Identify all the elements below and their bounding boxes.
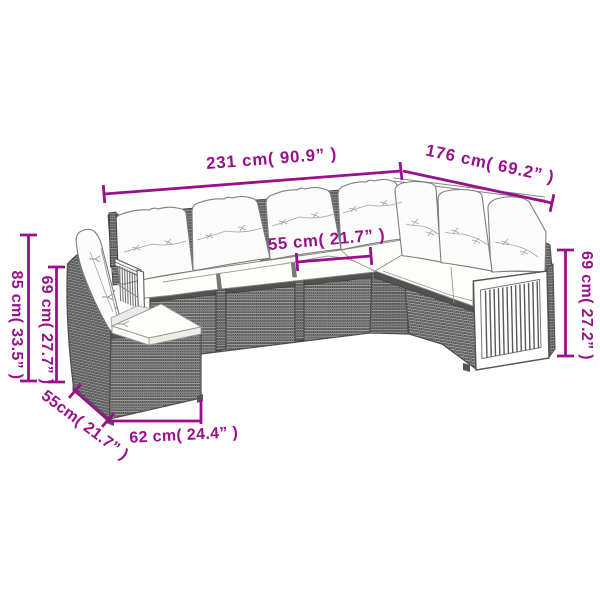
svg-text:69 cm( 27.2” ): 69 cm( 27.2” ) (578, 251, 595, 360)
svg-text:69 cm( 27.7” ): 69 cm( 27.7” ) (38, 276, 55, 385)
svg-text:231 cm( 90.9” ): 231 cm( 90.9” ) (205, 144, 337, 173)
svg-text:85 cm( 33.5” ): 85 cm( 33.5” ) (8, 271, 25, 380)
svg-text:62 cm( 24.4” ): 62 cm( 24.4” ) (129, 424, 239, 447)
